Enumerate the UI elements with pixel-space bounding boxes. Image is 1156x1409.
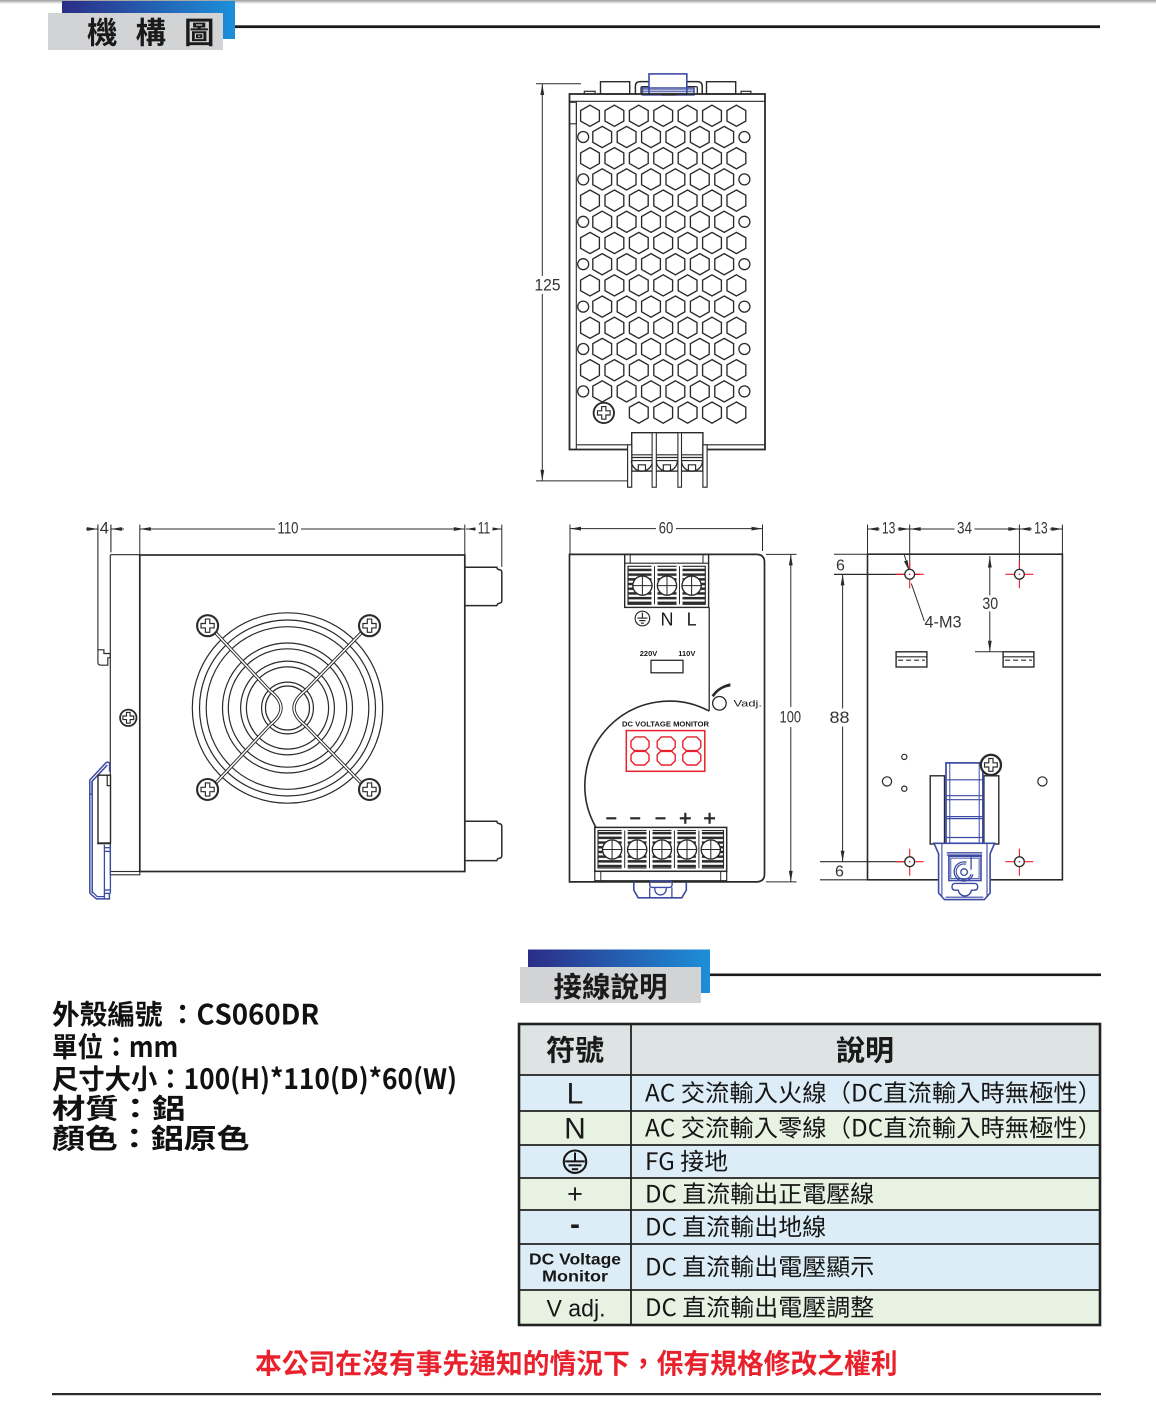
svg-text:N: N (661, 610, 674, 630)
svg-text:88: 88 (830, 709, 850, 727)
svg-text:220V: 220V (640, 649, 658, 658)
svg-text:N: N (564, 1113, 586, 1146)
svg-text:L: L (567, 1078, 584, 1111)
svg-text:110V: 110V (678, 649, 695, 658)
svg-text:6: 6 (836, 558, 845, 575)
svg-text:13: 13 (882, 520, 896, 538)
svg-text:6: 6 (835, 863, 844, 880)
svg-text:DC Voltage: DC Voltage (529, 1252, 621, 1269)
svg-text:60: 60 (659, 519, 674, 537)
svg-text:Monitor: Monitor (542, 1269, 608, 1286)
svg-text:4-M3: 4-M3 (925, 614, 962, 632)
svg-text:11: 11 (478, 520, 491, 538)
svg-text:-: - (570, 1208, 580, 1241)
svg-text:4: 4 (100, 520, 109, 538)
svg-text:30: 30 (982, 595, 998, 613)
svg-text:110: 110 (278, 520, 299, 538)
svg-text:Vadj.: Vadj. (734, 699, 763, 710)
svg-text:125: 125 (535, 276, 561, 294)
svg-text:100: 100 (780, 708, 802, 726)
svg-text:L: L (687, 610, 697, 630)
svg-text:+: + (567, 1179, 583, 1209)
svg-text:V adj.: V adj. (547, 1296, 606, 1323)
svg-text:DC VOLTAGE MONITOR: DC VOLTAGE MONITOR (622, 719, 710, 728)
svg-text:34: 34 (957, 520, 972, 538)
svg-text:13: 13 (1034, 520, 1048, 538)
